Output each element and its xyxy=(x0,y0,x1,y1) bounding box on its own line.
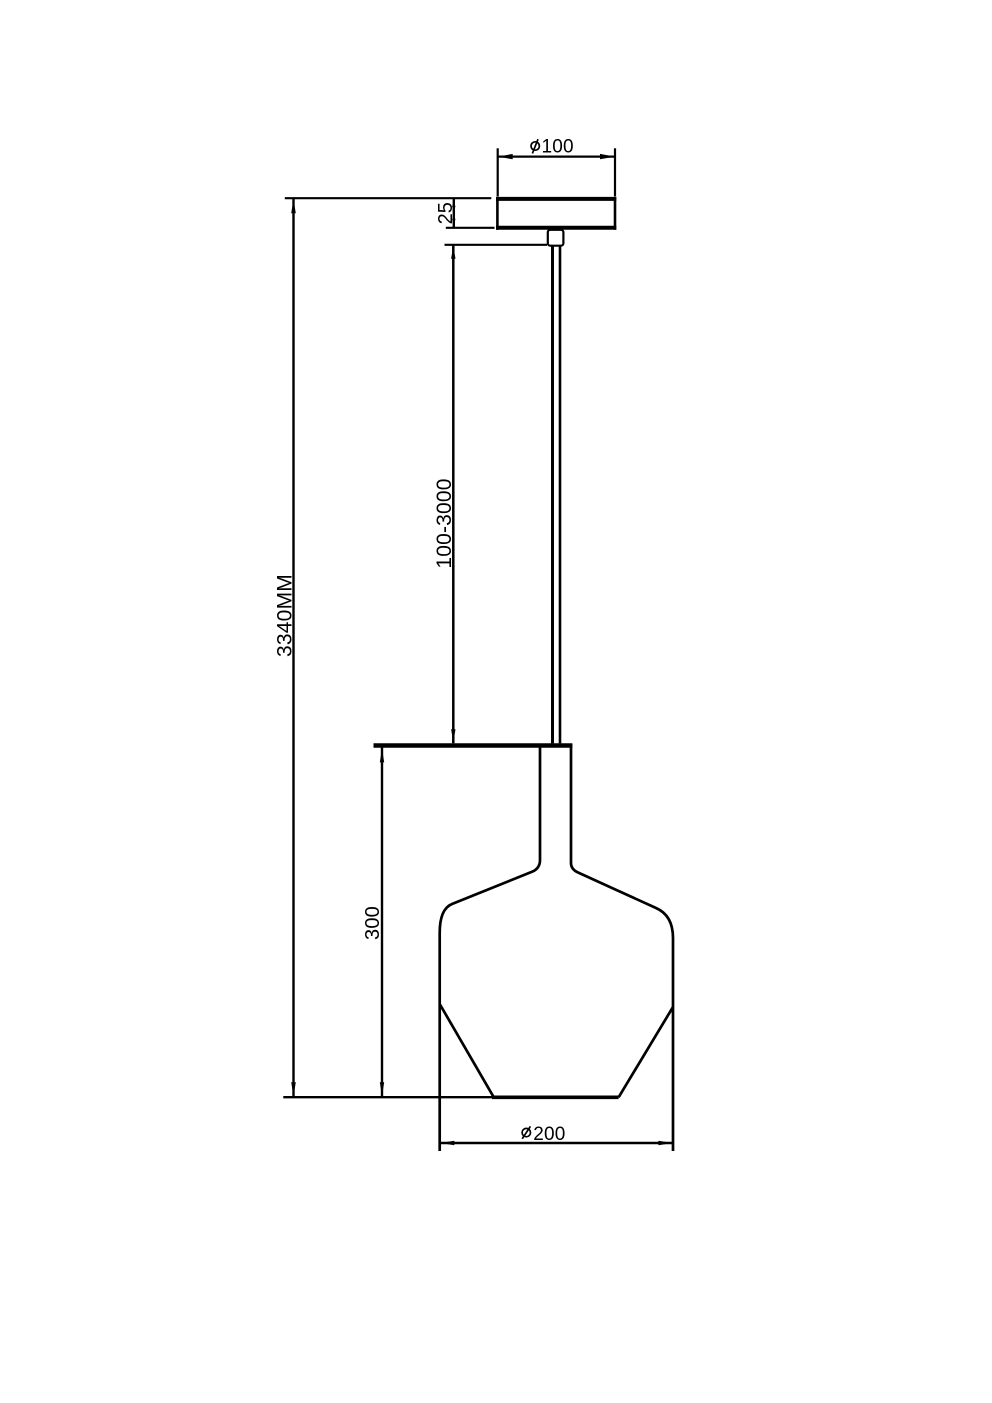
svg-text:100: 100 xyxy=(542,137,574,158)
svg-text:100-3000: 100-3000 xyxy=(433,478,456,568)
svg-text:3340MM: 3340MM xyxy=(274,574,297,657)
svg-text:200: 200 xyxy=(533,1124,565,1145)
svg-text:300: 300 xyxy=(362,906,384,940)
svg-text:25: 25 xyxy=(435,202,457,224)
